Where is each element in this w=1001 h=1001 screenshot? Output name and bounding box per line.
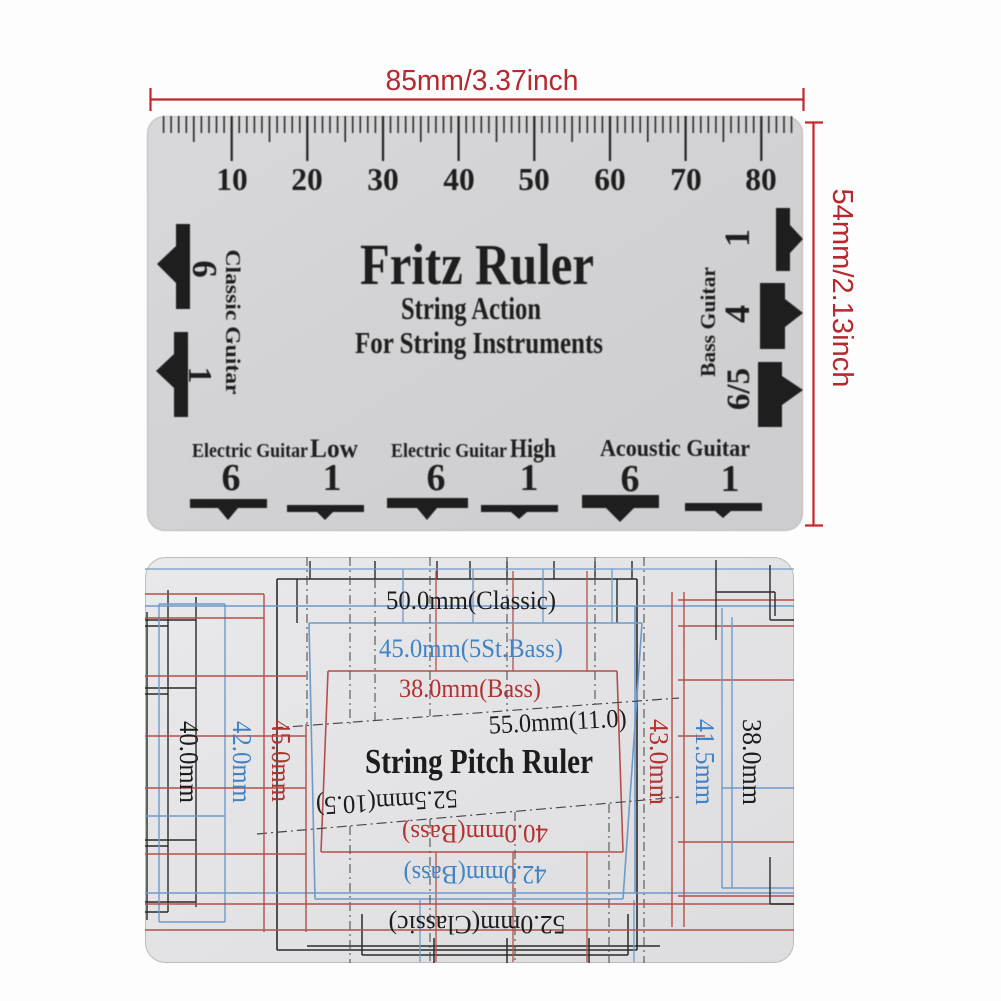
svg-text:42.0mm: 42.0mm [227,721,257,803]
svg-text:For String Instruments: For String Instruments [355,325,603,360]
svg-text:String Pitch Ruler: String Pitch Ruler [365,742,593,781]
svg-text:40.0mm(Bass): 40.0mm(Bass) [402,819,548,848]
svg-text:40: 40 [443,162,475,197]
svg-text:54mm/2.13inch: 54mm/2.13inch [826,189,858,388]
svg-text:Electric Guitar: Electric Guitar [391,440,507,462]
svg-text:1: 1 [181,367,218,384]
svg-text:45.0mm(5St.Bass): 45.0mm(5St.Bass) [379,634,563,663]
svg-text:80: 80 [745,162,777,197]
svg-text:1: 1 [717,229,757,247]
svg-text:6: 6 [621,458,640,500]
svg-text:45.0mm: 45.0mm [266,720,296,802]
svg-text:6/5: 6/5 [721,368,757,410]
svg-text:6: 6 [222,457,241,499]
svg-text:Classic Guitar: Classic Guitar [221,250,245,395]
svg-text:4: 4 [717,305,757,323]
svg-text:85mm/3.37inch: 85mm/3.37inch [386,65,579,97]
svg-text:38.0mm: 38.0mm [737,719,767,805]
svg-text:1: 1 [721,458,740,500]
svg-text:38.0mm(Bass): 38.0mm(Bass) [399,674,541,703]
svg-text:50: 50 [518,162,550,197]
svg-text:10: 10 [216,162,248,197]
svg-text:1: 1 [520,457,539,499]
svg-text:70: 70 [670,162,702,197]
svg-text:String Action: String Action [401,290,541,326]
svg-text:50.0mm(Classic): 50.0mm(Classic) [386,586,556,615]
svg-text:42.0mm(Bass): 42.0mm(Bass) [404,860,547,889]
svg-text:40.0mm: 40.0mm [174,721,204,803]
svg-text:52.0mm(Classic): 52.0mm(Classic) [389,910,566,939]
svg-text:43.0mm: 43.0mm [644,719,674,805]
svg-text:1: 1 [323,457,342,499]
svg-text:30: 30 [367,162,399,197]
svg-text:20: 20 [291,162,323,197]
svg-text:Electric Guitar: Electric Guitar [192,440,308,462]
svg-text:6: 6 [427,457,446,499]
svg-text:41.5mm: 41.5mm [690,719,720,805]
svg-text:60: 60 [594,162,626,197]
svg-text:Fritz Ruler: Fritz Ruler [360,232,594,297]
svg-text:6: 6 [185,260,224,278]
